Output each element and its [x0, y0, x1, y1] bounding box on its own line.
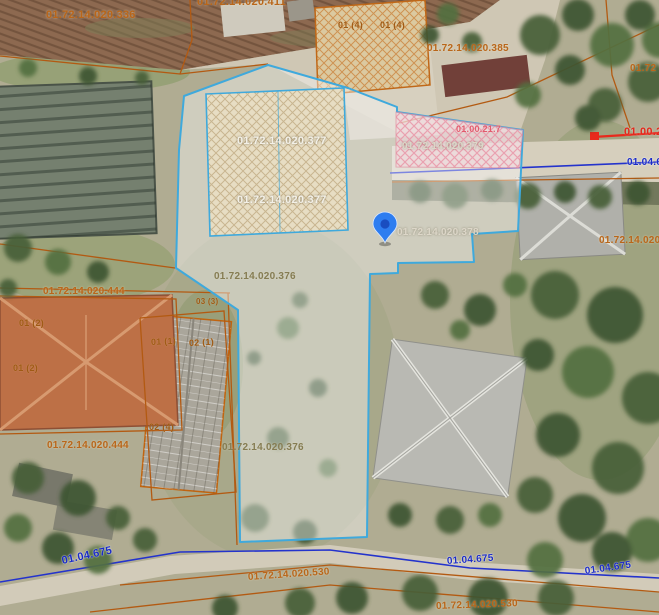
building-label: 01 (2): [19, 319, 44, 328]
parcel-label: 01.72.14.020.336: [46, 10, 136, 21]
building-label: 03 (3): [196, 298, 218, 306]
parcel-label: 01.72.14.020.379: [402, 142, 484, 152]
road-label: 01.04.675: [61, 545, 113, 566]
building-label: 02 (4): [149, 423, 174, 432]
parcel-label: 01.72.14.020.444: [43, 287, 125, 297]
road-label: 01.04.675: [584, 561, 632, 577]
map-labels-layer: 01.72.14.020.33601.72.14.020.41101 (4)01…: [0, 0, 659, 615]
parcel-label: 01.72: [630, 64, 656, 74]
parcel-label: 01.72.14.020.530: [436, 599, 518, 612]
road-label: 01.04.6: [627, 158, 659, 168]
parcel-label: 01.72.14.020.411: [197, 0, 286, 8]
building-label: 01 (1): [151, 337, 176, 347]
parcel-label: 01.72.14.020.376: [222, 443, 304, 453]
parcel-label: 01.72.14.020.376: [214, 272, 296, 282]
parcel-label: 01.72.14.020.530: [248, 567, 330, 583]
parcel-label: 01.72.14.020.385: [427, 44, 509, 54]
cadastral-map-viewport[interactable]: 01.72.14.020.33601.72.14.020.41101 (4)01…: [0, 0, 659, 615]
road-label: 01.04.675: [447, 554, 494, 567]
building-label: 01 (4): [338, 21, 363, 30]
building-label: 01 (4): [380, 21, 405, 30]
building-label: 02 (1): [189, 338, 214, 348]
parcel-label: 01.72.14.020.377: [237, 136, 327, 147]
route-point-label: 01.00.2: [624, 127, 659, 138]
parcel-label: 01.72.14.020.378: [397, 228, 479, 238]
parcel-label: 01.72.14.020.377: [237, 195, 327, 206]
route-point-label: 01.00.21.7: [456, 125, 501, 134]
parcel-label: 01.72.14.020.444: [47, 441, 129, 451]
building-label: 01 (2): [13, 364, 38, 373]
parcel-label: 01.72.14.020: [599, 236, 659, 246]
